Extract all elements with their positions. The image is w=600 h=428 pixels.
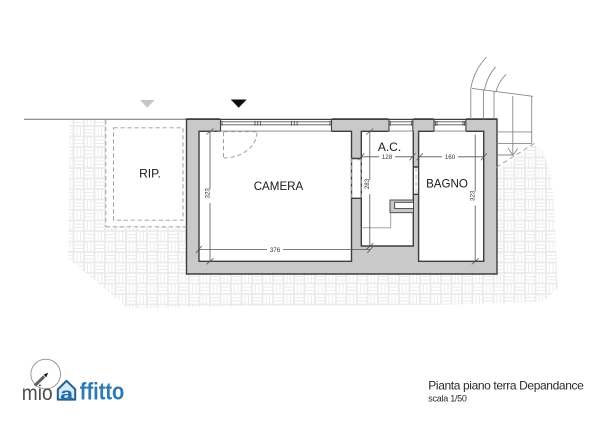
- svg-text:323: 323: [204, 188, 211, 199]
- svg-text:A.C.: A.C.: [378, 140, 401, 154]
- svg-text:376: 376: [270, 247, 281, 254]
- svg-text:RIP.: RIP.: [139, 167, 161, 181]
- svg-text:160: 160: [445, 154, 456, 161]
- svg-text:BAGNO: BAGNO: [426, 178, 468, 191]
- svg-text:a: a: [60, 385, 74, 403]
- svg-text:ffitto: ffitto: [80, 379, 125, 406]
- svg-text:CAMERA: CAMERA: [254, 180, 304, 193]
- svg-text:Pianta piano terra Depandance: Pianta piano terra Depandance: [428, 379, 584, 393]
- svg-text:mio: mio: [22, 381, 53, 405]
- svg-text:128: 128: [382, 154, 393, 161]
- svg-text:323: 323: [470, 190, 477, 201]
- svg-text:283: 283: [364, 178, 371, 189]
- svg-text:scala 1/50: scala 1/50: [428, 394, 467, 404]
